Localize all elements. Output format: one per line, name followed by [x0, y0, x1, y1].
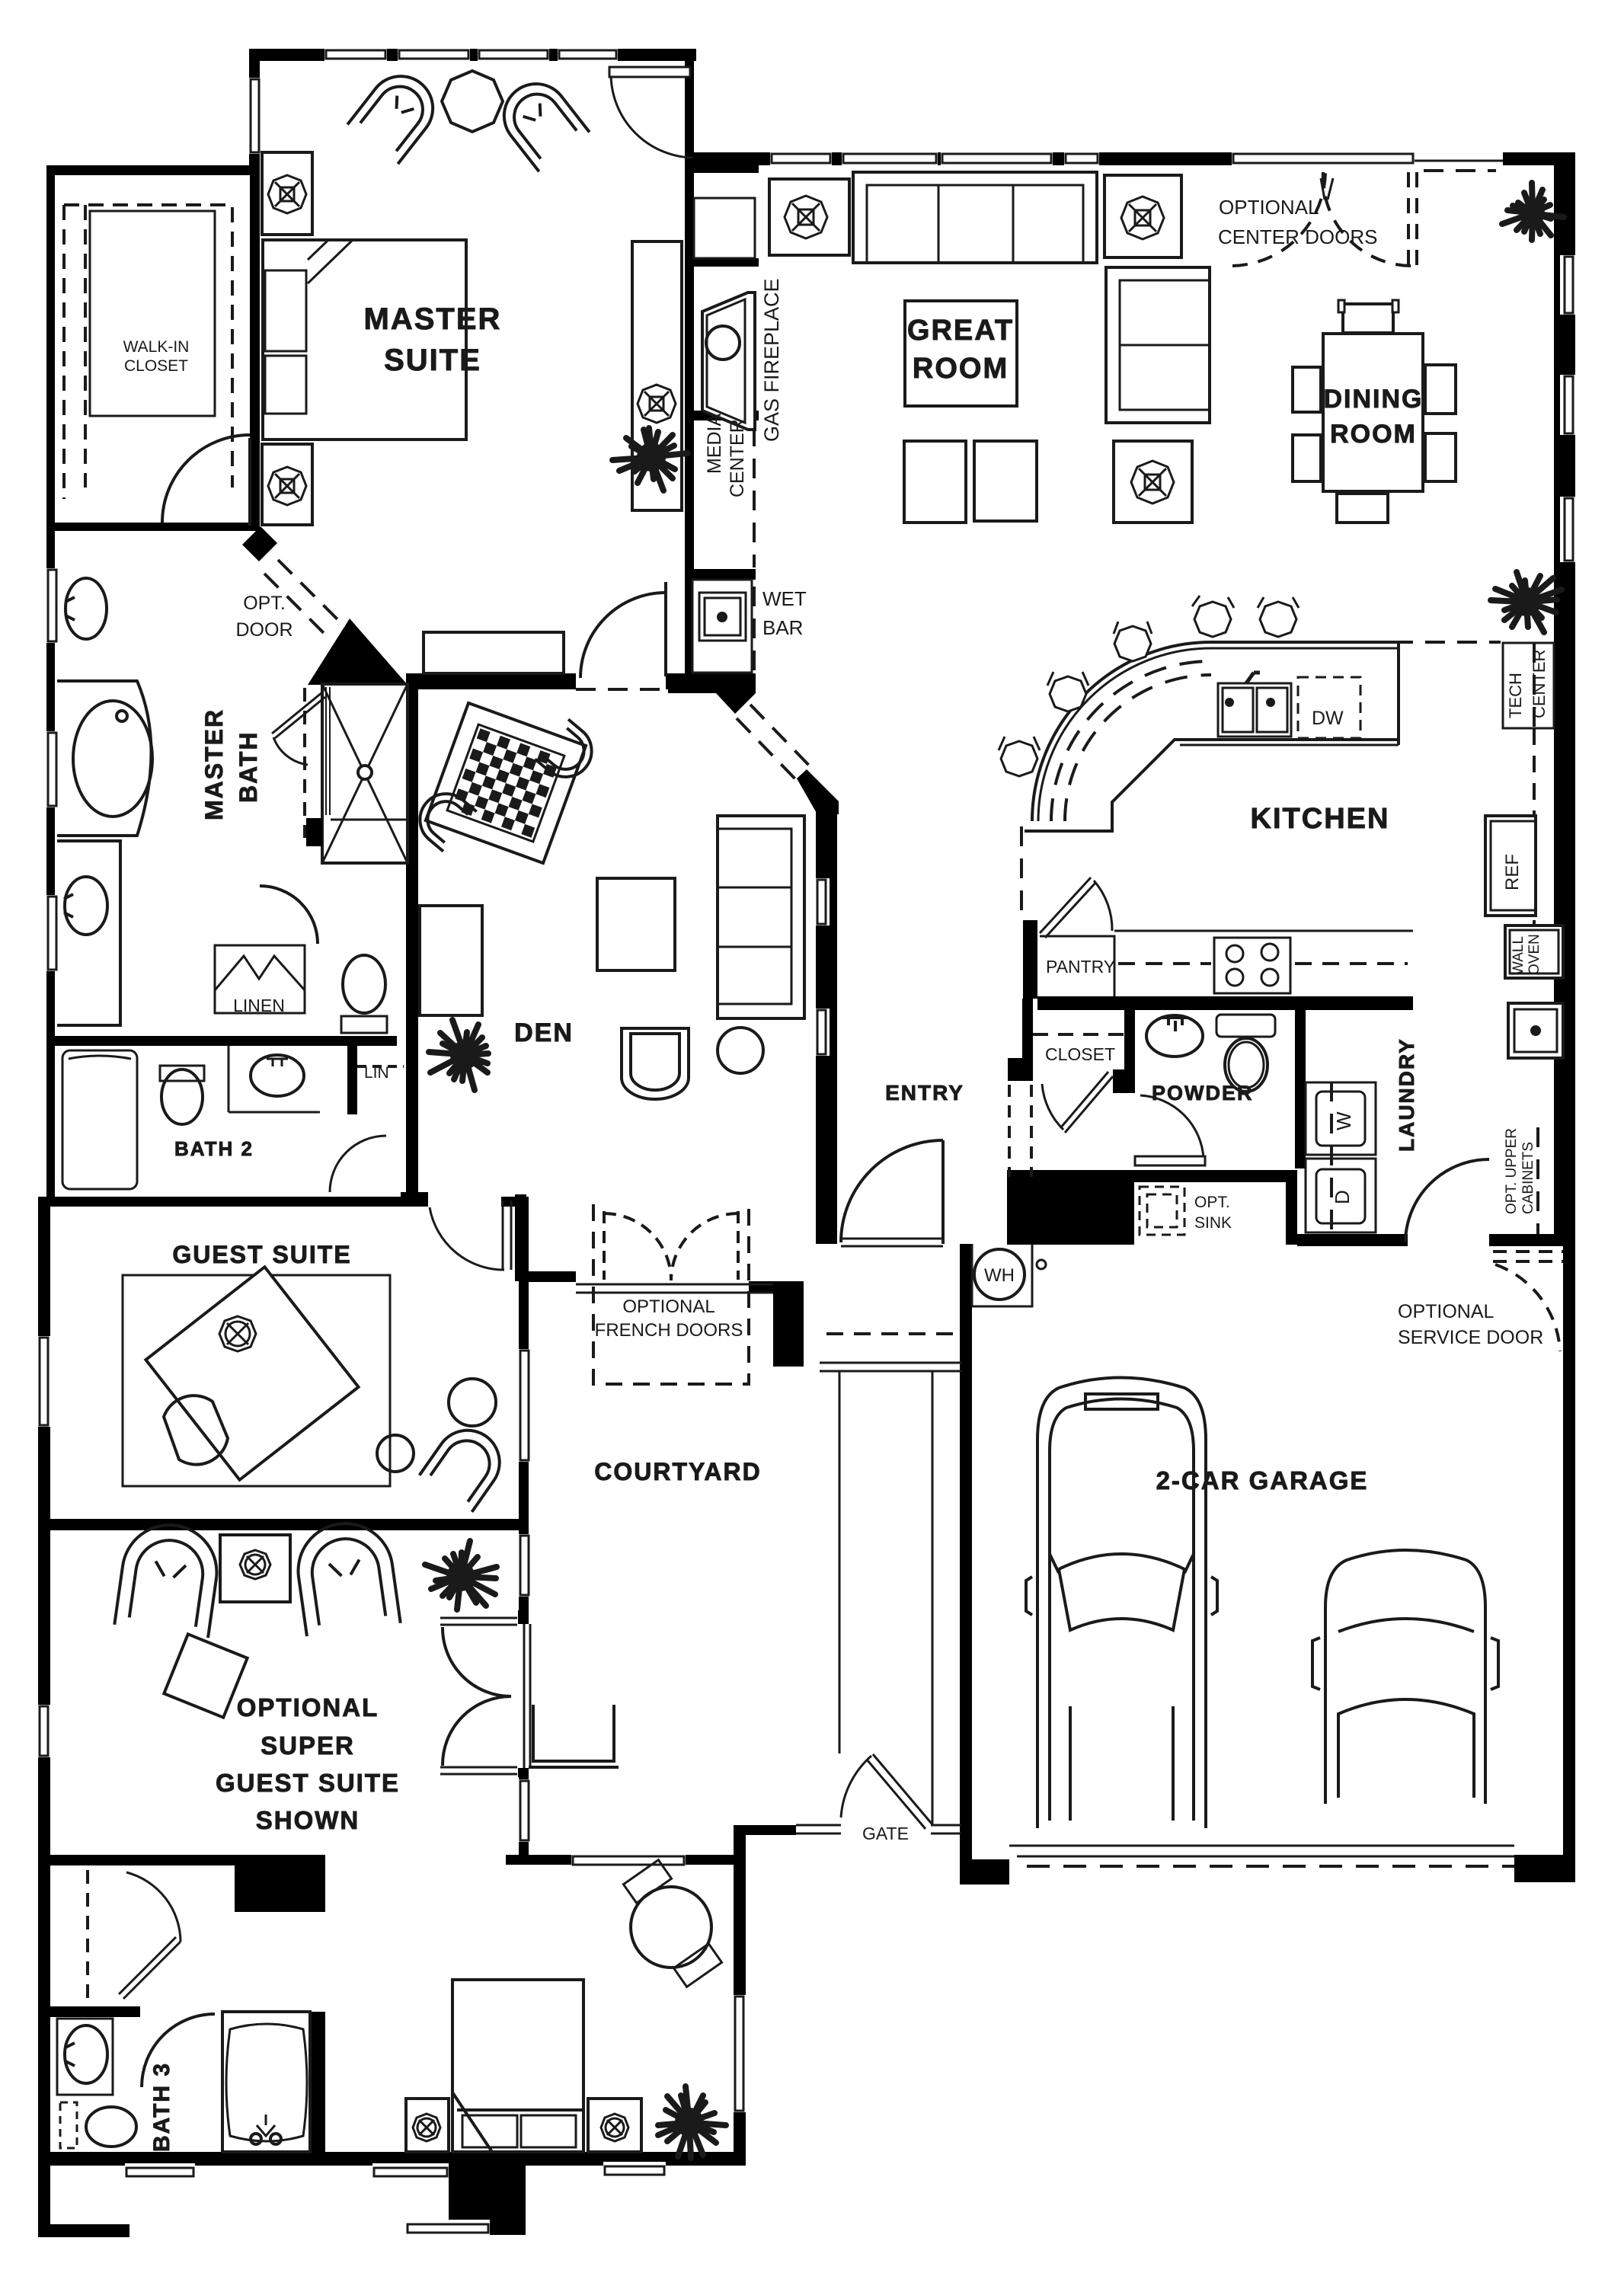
- svg-text:BAR: BAR: [762, 616, 803, 639]
- svg-text:ROOM: ROOM: [913, 353, 1009, 385]
- svg-text:DINING: DINING: [1324, 385, 1424, 414]
- svg-text:GAS FIREPLACE: GAS FIREPLACE: [760, 278, 783, 442]
- svg-text:COURTYARD: COURTYARD: [594, 1458, 762, 1485]
- svg-text:WALL: WALL: [1511, 936, 1526, 975]
- svg-text:SERVICE DOOR: SERVICE DOOR: [1398, 1327, 1543, 1348]
- svg-text:OPT.: OPT.: [243, 593, 286, 614]
- svg-text:DOOR: DOOR: [236, 619, 293, 641]
- svg-text:CENTER DOORS: CENTER DOORS: [1218, 225, 1377, 248]
- svg-text:CENTER: CENTER: [727, 419, 748, 497]
- svg-text:BATH 2: BATH 2: [174, 1137, 254, 1160]
- svg-text:CLOSET: CLOSET: [1045, 1044, 1115, 1064]
- svg-text:OVEN: OVEN: [1526, 934, 1542, 975]
- svg-text:REF: REF: [1502, 854, 1523, 890]
- svg-text:PANTRY: PANTRY: [1046, 957, 1115, 977]
- svg-text:2-CAR GARAGE: 2-CAR GARAGE: [1156, 1466, 1369, 1495]
- svg-text:SINK: SINK: [1194, 1214, 1232, 1232]
- svg-text:LAUNDRY: LAUNDRY: [1395, 1037, 1418, 1152]
- svg-text:MEDIA: MEDIA: [704, 414, 725, 475]
- svg-text:BATH 3: BATH 3: [149, 2062, 174, 2152]
- svg-text:WALK-IN: WALK-IN: [123, 338, 190, 356]
- svg-text:POWDER: POWDER: [1152, 1082, 1254, 1105]
- svg-text:OPTIONAL: OPTIONAL: [1219, 196, 1319, 219]
- svg-text:LIN: LIN: [364, 1064, 389, 1082]
- svg-text:TECH: TECH: [1506, 673, 1525, 718]
- svg-text:BATH: BATH: [235, 731, 262, 804]
- svg-text:GREAT: GREAT: [907, 315, 1014, 347]
- svg-text:W: W: [1332, 1111, 1355, 1130]
- svg-text:CLOSET: CLOSET: [124, 357, 188, 375]
- svg-text:MASTER: MASTER: [364, 302, 502, 336]
- svg-text:GATE: GATE: [862, 1824, 909, 1843]
- svg-text:CABINETS: CABINETS: [1520, 1142, 1536, 1214]
- svg-text:OPTIONAL: OPTIONAL: [1398, 1301, 1495, 1322]
- svg-text:OPT.: OPT.: [1194, 1194, 1230, 1211]
- svg-text:OPTIONAL: OPTIONAL: [237, 1693, 379, 1722]
- svg-text:DEN: DEN: [514, 1018, 574, 1047]
- svg-text:OPTIONAL: OPTIONAL: [622, 1296, 714, 1317]
- svg-text:SUPER: SUPER: [261, 1731, 355, 1760]
- svg-text:SUITE: SUITE: [384, 344, 481, 377]
- svg-text:SHOWN: SHOWN: [256, 1806, 360, 1834]
- svg-text:FRENCH DOORS: FRENCH DOORS: [595, 1320, 743, 1341]
- svg-text:MASTER: MASTER: [200, 708, 228, 820]
- svg-text:KITCHEN: KITCHEN: [1251, 803, 1390, 835]
- svg-text:LINEN: LINEN: [233, 996, 285, 1015]
- svg-text:ENTRY: ENTRY: [885, 1081, 964, 1105]
- svg-text:GUEST SUITE: GUEST SUITE: [172, 1241, 351, 1268]
- svg-text:WH: WH: [984, 1265, 1015, 1286]
- svg-text:OPT. UPPER: OPT. UPPER: [1504, 1128, 1520, 1214]
- svg-text:DW: DW: [1312, 708, 1344, 729]
- svg-text:D: D: [1331, 1190, 1354, 1204]
- svg-text:CENTER: CENTER: [1530, 650, 1549, 718]
- svg-text:WET: WET: [762, 587, 807, 610]
- svg-text:GUEST SUITE: GUEST SUITE: [216, 1769, 400, 1797]
- svg-text:ROOM: ROOM: [1330, 420, 1417, 449]
